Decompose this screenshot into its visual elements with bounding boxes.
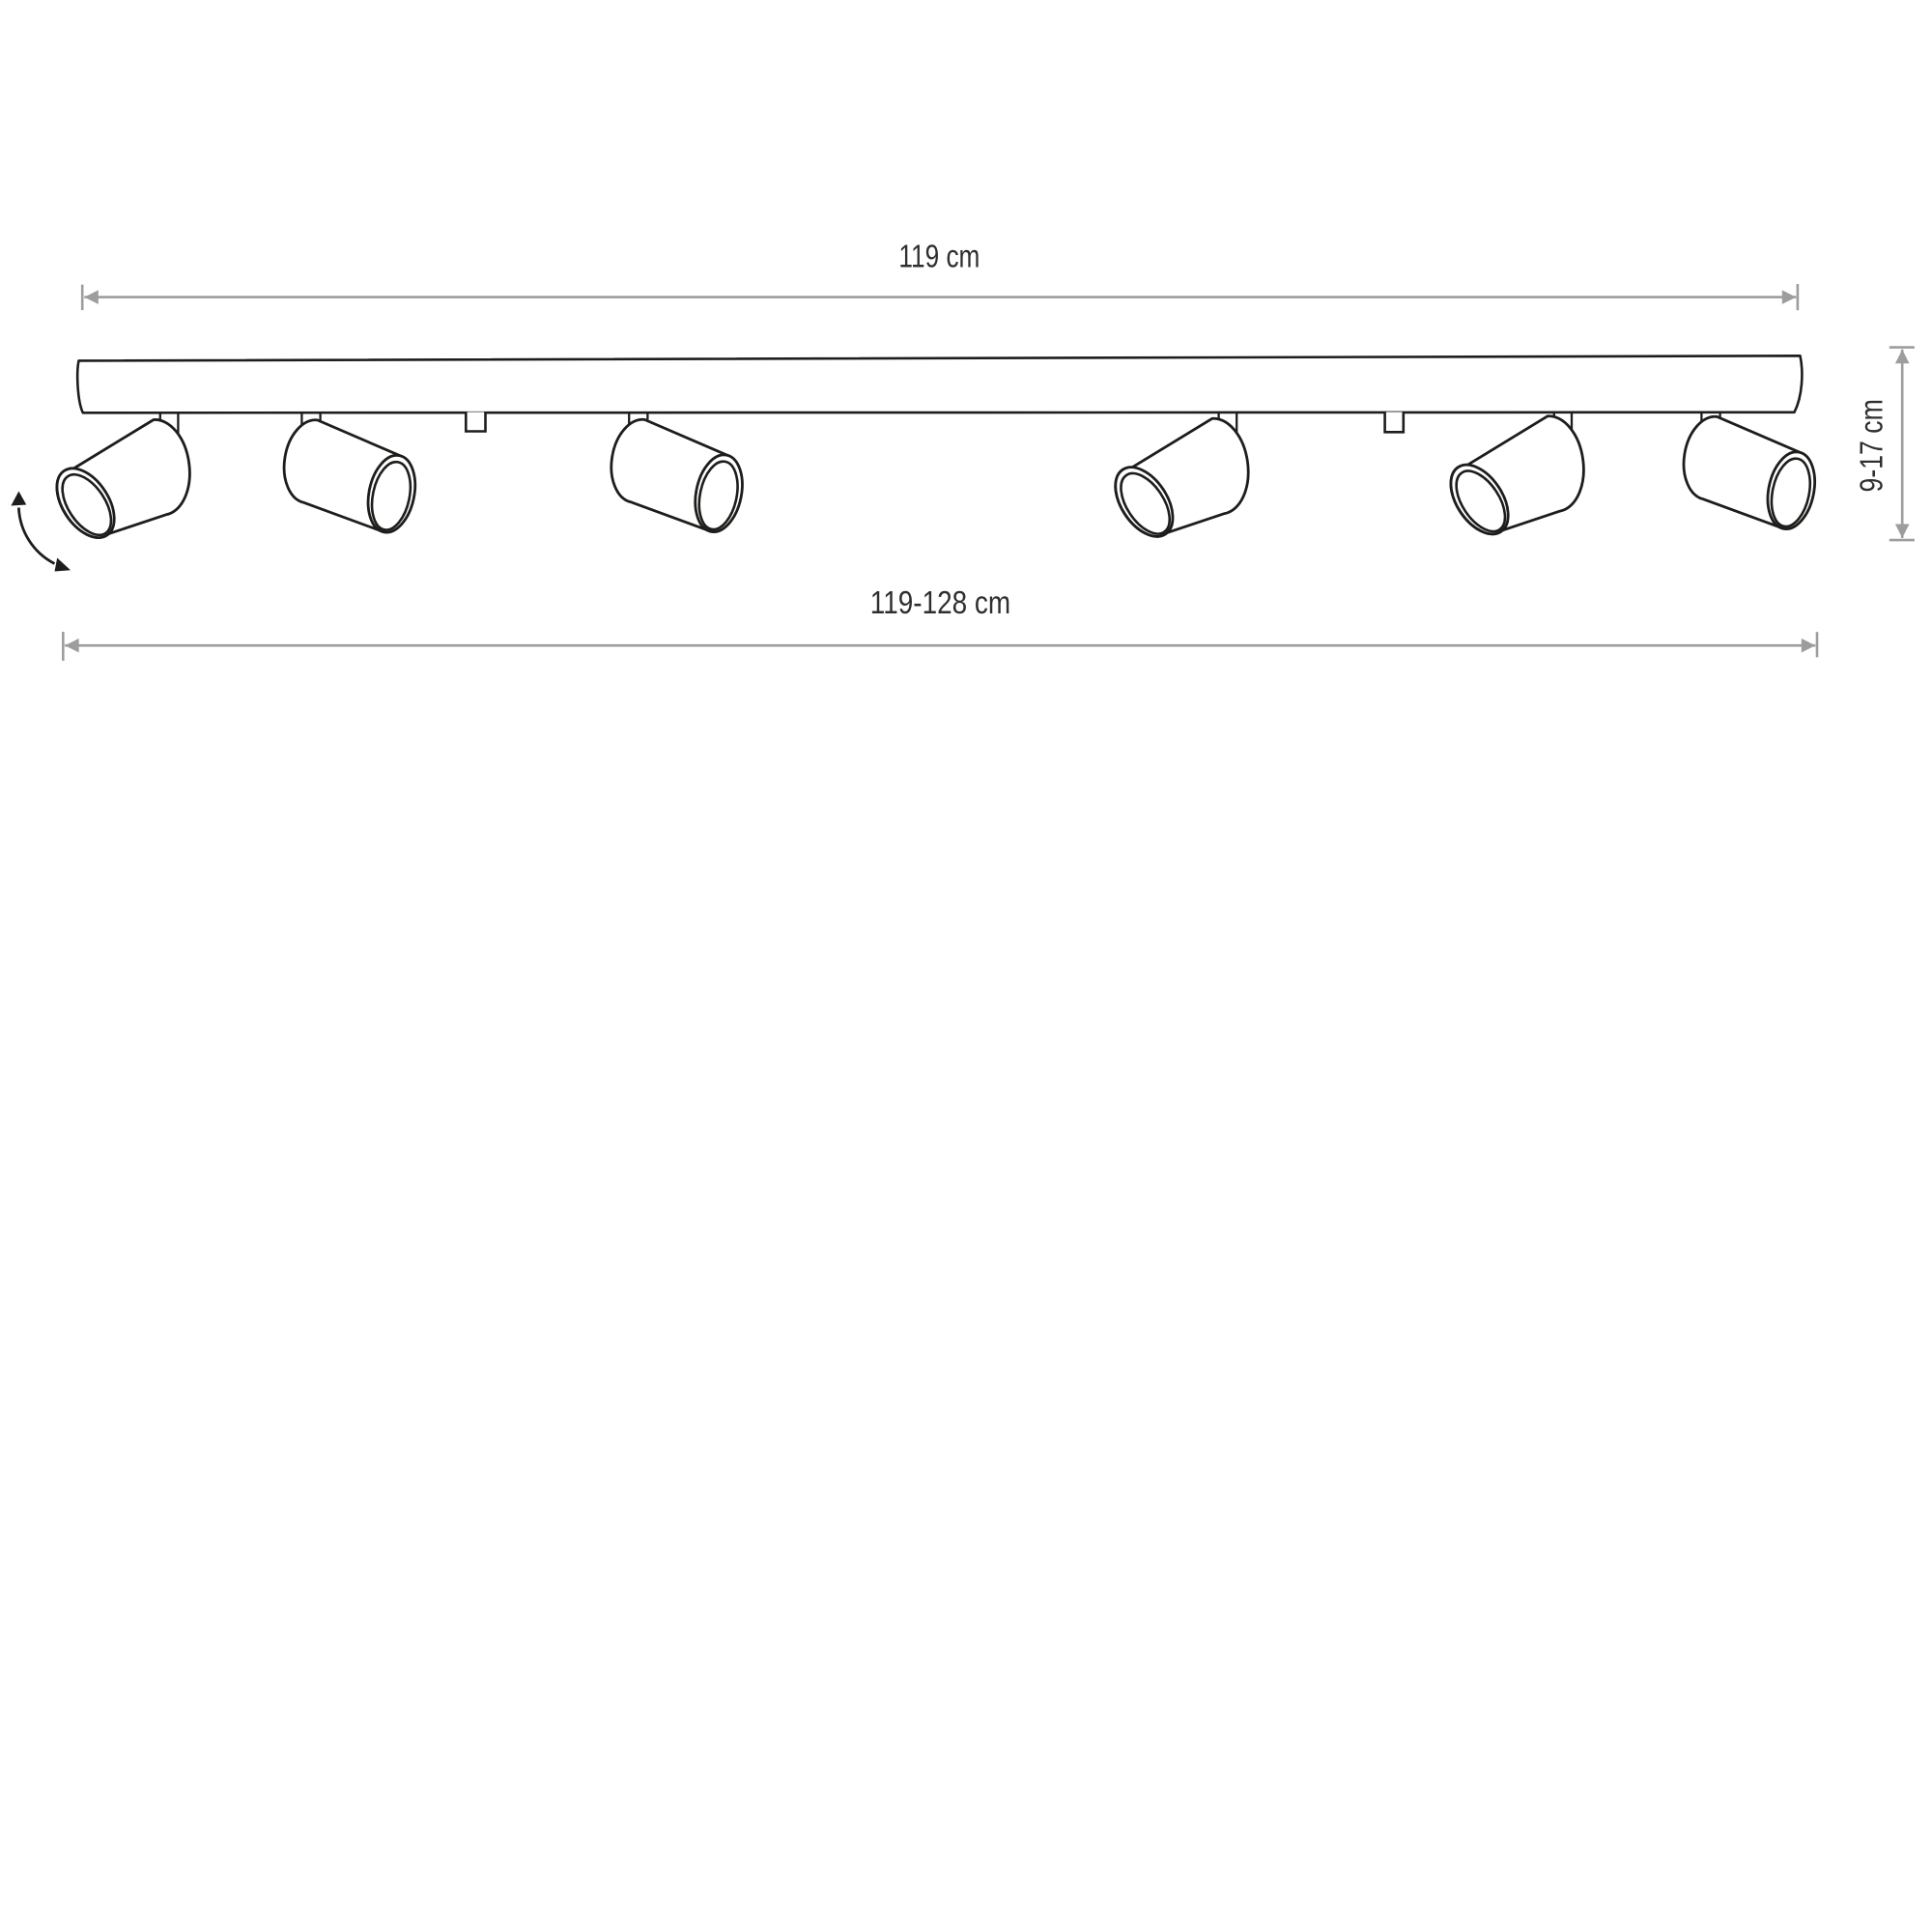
svg-text:119-128 cm: 119-128 cm [870,584,1010,620]
svg-text:119 cm: 119 cm [898,239,980,274]
svg-text:9-17 cm: 9-17 cm [1854,399,1889,492]
